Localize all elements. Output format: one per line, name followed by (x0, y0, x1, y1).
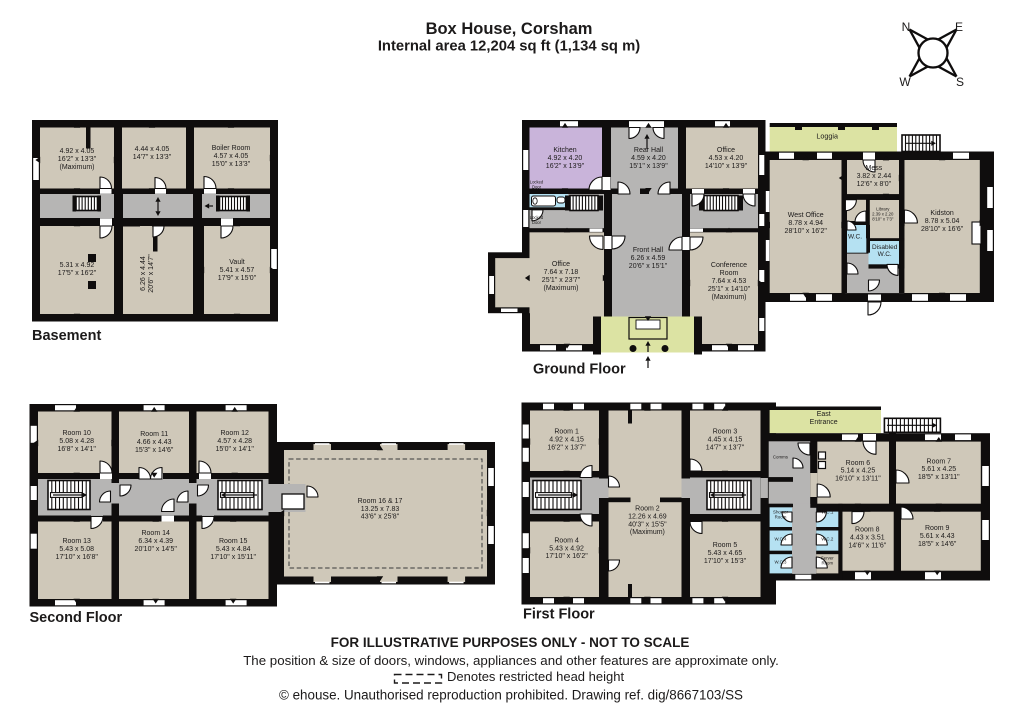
svg-text:W: W (899, 75, 911, 89)
svg-text:5.31 x 4.9217'5" x 16'2": 5.31 x 4.9217'5" x 16'2" (58, 262, 97, 277)
svg-text:Basement: Basement (32, 328, 101, 344)
svg-text:Denotes restricted head height: Denotes restricted head height (447, 669, 624, 684)
svg-text:6.26 x 4.4420'6" x 14'7": 6.26 x 4.4420'6" x 14'7" (140, 254, 155, 293)
svg-text:ShowerRoom: ShowerRoom (773, 510, 788, 520)
svg-text:Room 124.57 x 4.2815'0" x 14'1: Room 124.57 x 4.2815'0" x 14'1" (216, 430, 255, 453)
svg-text:Box House, Corsham: Box House, Corsham (426, 20, 593, 38)
svg-text:4.44 x 4.0514'7" x 13'3": 4.44 x 4.0514'7" x 13'3" (133, 146, 172, 161)
svg-text:S: S (956, 75, 964, 89)
svg-text:W.C.1: W.C.1 (821, 510, 834, 515)
svg-text:Internal area 12,204 sq ft (1,: Internal area 12,204 sq ft (1,134 sq m) (378, 39, 640, 55)
svg-text:Second Floor: Second Floor (30, 610, 123, 626)
svg-text:E: E (955, 20, 963, 34)
svg-text:Front Hall6.26 x 4.5920'6" x 1: Front Hall6.26 x 4.5920'6" x 15'1" (629, 247, 668, 270)
svg-text:The position & size of doors,: The position & size of doors, windows, a… (243, 653, 779, 668)
svg-text:ConferenceRoom7.64 x 4.5325'1": ConferenceRoom7.64 x 4.5325'1" x 14'10"(… (708, 262, 751, 301)
svg-text:FOR ILLUSTRATIVE PURPOSES ONLY: FOR ILLUSTRATIVE PURPOSES ONLY - NOT TO … (331, 635, 690, 650)
svg-text:Ground Floor: Ground Floor (533, 362, 626, 378)
svg-text:Room 16 & 1713.25 x 7.8343'6": Room 16 & 1713.25 x 7.8343'6" x 25'8" (358, 498, 403, 521)
svg-text:W.C.4: W.C.4 (775, 537, 788, 542)
svg-text:Room 105.08 x 4.2816'8" x 14'1: Room 105.08 x 4.2816'8" x 14'1" (58, 430, 97, 453)
svg-text:© ehouse. Unauthorised reprodu: © ehouse. Unauthorised reproduction proh… (279, 688, 743, 703)
svg-text:N: N (902, 20, 911, 34)
svg-text:4.92 x 4.0516'2" x 13'3"(Maxim: 4.92 x 4.0516'2" x 13'3"(Maximum) (58, 148, 97, 171)
svg-text:Rear Hall4.59 x 4.2015'1" x 13: Rear Hall4.59 x 4.2015'1" x 13'9" (629, 147, 668, 170)
svg-text:Comms: Comms (773, 454, 789, 459)
svg-text:W.C.3: W.C.3 (775, 560, 788, 565)
svg-text:First Floor: First Floor (523, 607, 595, 623)
svg-text:Room 114.66 x 4.4315'3" x 14'6: Room 114.66 x 4.4315'3" x 14'6" (135, 431, 174, 454)
svg-text:West Office8.78 x 4.9428'10" x: West Office8.78 x 4.9428'10" x 16'2" (785, 212, 828, 235)
svg-text:ServerRoom: ServerRoom (821, 556, 834, 566)
svg-text:W.C.2: W.C.2 (821, 537, 834, 542)
svg-text:Boiler Room4.57 x 4.0515'0" x: Boiler Room4.57 x 4.0515'0" x 13'3" (212, 145, 251, 168)
svg-text:W.C.: W.C. (848, 234, 862, 241)
svg-text:Loggia: Loggia (816, 132, 838, 141)
